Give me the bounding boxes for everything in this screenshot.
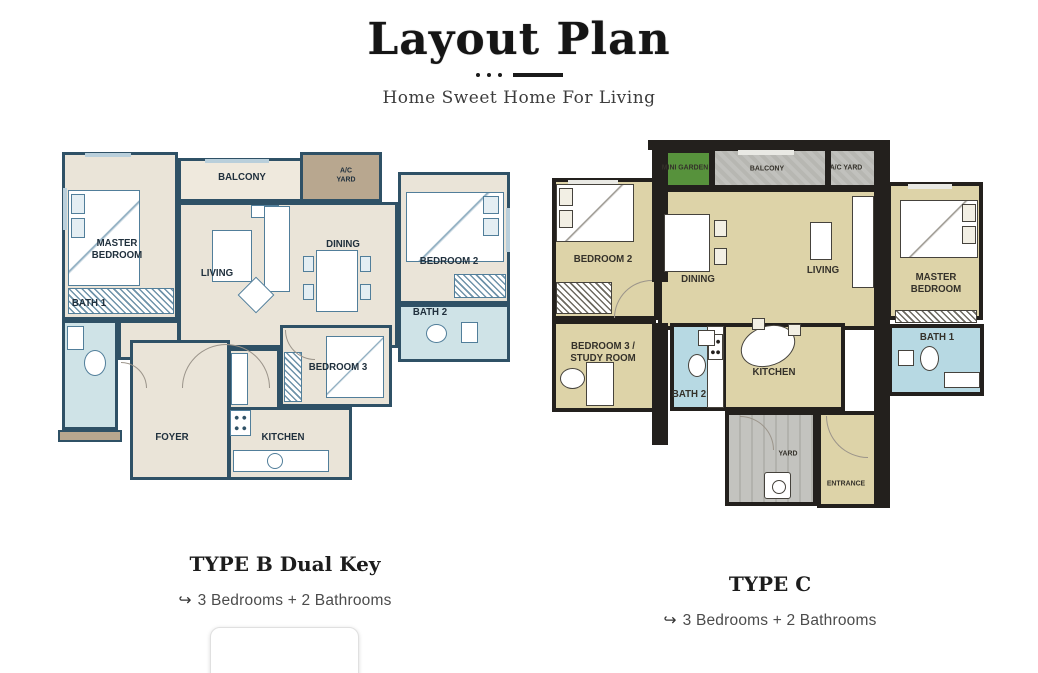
dining-table <box>316 250 358 312</box>
bath1-toilet <box>84 350 106 376</box>
bath1-sink <box>898 350 914 366</box>
sofa <box>852 196 874 288</box>
bath1-toilet <box>920 346 939 371</box>
wall <box>652 323 668 445</box>
pillow <box>962 226 976 244</box>
room-label-foyer: FOYER <box>144 431 199 443</box>
window <box>85 153 131 157</box>
room-label-yard: YARD <box>770 450 807 459</box>
pillow <box>483 218 499 236</box>
window <box>506 208 510 252</box>
wardrobe-bedroom3 <box>284 352 302 402</box>
dining-chair <box>303 284 314 300</box>
room-label-bath1: BATH 1 <box>63 297 115 309</box>
pillow <box>483 196 499 214</box>
caption-type-b: TYPE B Dual Key ↪3 Bedrooms + 2 Bathroom… <box>150 552 420 610</box>
caption-type-c: TYPE C ↪3 Bedrooms + 2 Bathrooms <box>635 572 905 630</box>
dining-chair <box>714 248 727 265</box>
plan-c-features: ↪3 Bedrooms + 2 Bathrooms <box>635 611 905 630</box>
room-label-balcony: BALCONY <box>201 171 284 183</box>
room-label-bedroom2: BEDROOM 2 <box>562 253 645 265</box>
room-label-bath1: BATH 1 <box>911 331 963 343</box>
kitchen-chair <box>752 318 765 330</box>
window <box>738 150 794 155</box>
bath1-tub <box>944 372 980 388</box>
room-label-bedroom3: BEDROOM 3 <box>297 361 380 373</box>
floorplan-type-b: MASTER BEDROOM BALCONY A/C YARD LIVING D… <box>55 148 517 512</box>
wall <box>874 140 890 508</box>
pillow <box>559 188 573 206</box>
plan-b-features-text: 3 Bedrooms + 2 Bathrooms <box>198 592 392 609</box>
pillow <box>71 218 85 238</box>
washing-machine <box>764 472 791 499</box>
room-label-master-bedroom: MASTER BEDROOM <box>84 237 150 261</box>
arrow-icon: ↪ <box>178 592 191 609</box>
plan-b-title: TYPE B Dual Key <box>150 552 420 576</box>
room-label-dining: DINING <box>666 273 730 285</box>
floorplan-type-c: MINI GARDEN BALCONY A/C YARD BEDROOM 2 D… <box>548 138 990 510</box>
dining-chair <box>303 256 314 272</box>
room-label-dining: DINING <box>311 238 375 250</box>
dining-table <box>664 214 710 272</box>
wardrobe-master <box>895 310 977 323</box>
wall <box>648 140 888 150</box>
dining-chair <box>360 256 371 272</box>
plan-b-features: ↪3 Bedrooms + 2 Bathrooms <box>150 591 420 610</box>
plan-c-features-text: 3 Bedrooms + 2 Bathrooms <box>683 612 877 629</box>
bottom-button[interactable] <box>210 627 359 673</box>
wardrobe-bedroom2 <box>556 282 612 314</box>
ledge <box>58 430 122 442</box>
kitchen-stove <box>230 410 251 436</box>
pillow <box>962 204 976 222</box>
arrow-icon: ↪ <box>663 612 676 629</box>
room-label-bedroom3-study: BEDROOM 3 / STUDY ROOM <box>563 340 642 364</box>
ornament-dot <box>476 73 480 77</box>
room-label-balcony: BALCONY <box>739 165 794 174</box>
room-label-kitchen: KITCHEN <box>251 431 315 443</box>
study-chair <box>560 368 585 389</box>
room-label-living: LIVING <box>791 264 855 276</box>
kitchen-sink <box>267 453 283 469</box>
window <box>63 188 67 230</box>
bath2-sink <box>698 330 715 346</box>
ornament-bar <box>513 73 563 77</box>
title-ornament <box>0 71 1038 79</box>
room-label-living: LIVING <box>185 267 249 279</box>
room-label-kitchen: KITCHEN <box>742 366 806 378</box>
bath1-sink <box>67 326 84 350</box>
room-label-entrance: ENTRANCE <box>820 480 872 489</box>
room-label-mini-garden: MINI GARDEN <box>661 164 709 173</box>
kitchen-chair <box>788 324 801 336</box>
pillow <box>559 210 573 228</box>
header: Layout Plan Home Sweet Home For Living <box>0 14 1038 108</box>
sofa <box>264 206 290 292</box>
bath2-toilet <box>426 324 447 343</box>
dining-chair <box>714 220 727 237</box>
bath2-sink <box>461 322 478 343</box>
ornament-dot <box>498 73 502 77</box>
wardrobe-bedroom2 <box>454 274 506 298</box>
room-label-ac-yard: A/C YARD <box>823 164 869 173</box>
room-label-bath2: BATH 2 <box>402 306 457 318</box>
ornament-dot <box>487 73 491 77</box>
room-label-bedroom2: BEDROOM 2 <box>408 255 491 267</box>
dining-chair <box>360 284 371 300</box>
window <box>205 159 269 163</box>
page-title: Layout Plan <box>0 14 1038 65</box>
layout-plan-page: Layout Plan Home Sweet Home For Living <box>0 0 1038 673</box>
page-subtitle: Home Sweet Home For Living <box>0 88 1038 108</box>
room-label-bath2: BATH 2 <box>663 388 715 400</box>
pillow <box>71 194 85 214</box>
room-label-ac-yard: A/C YARD <box>334 166 358 183</box>
window <box>908 184 952 189</box>
tv-console <box>810 222 832 260</box>
study-desk <box>586 362 614 406</box>
plan-c-title: TYPE C <box>635 572 905 596</box>
room-label-master-bedroom: MASTER BEDROOM <box>904 271 968 295</box>
bath2-toilet <box>688 354 706 377</box>
